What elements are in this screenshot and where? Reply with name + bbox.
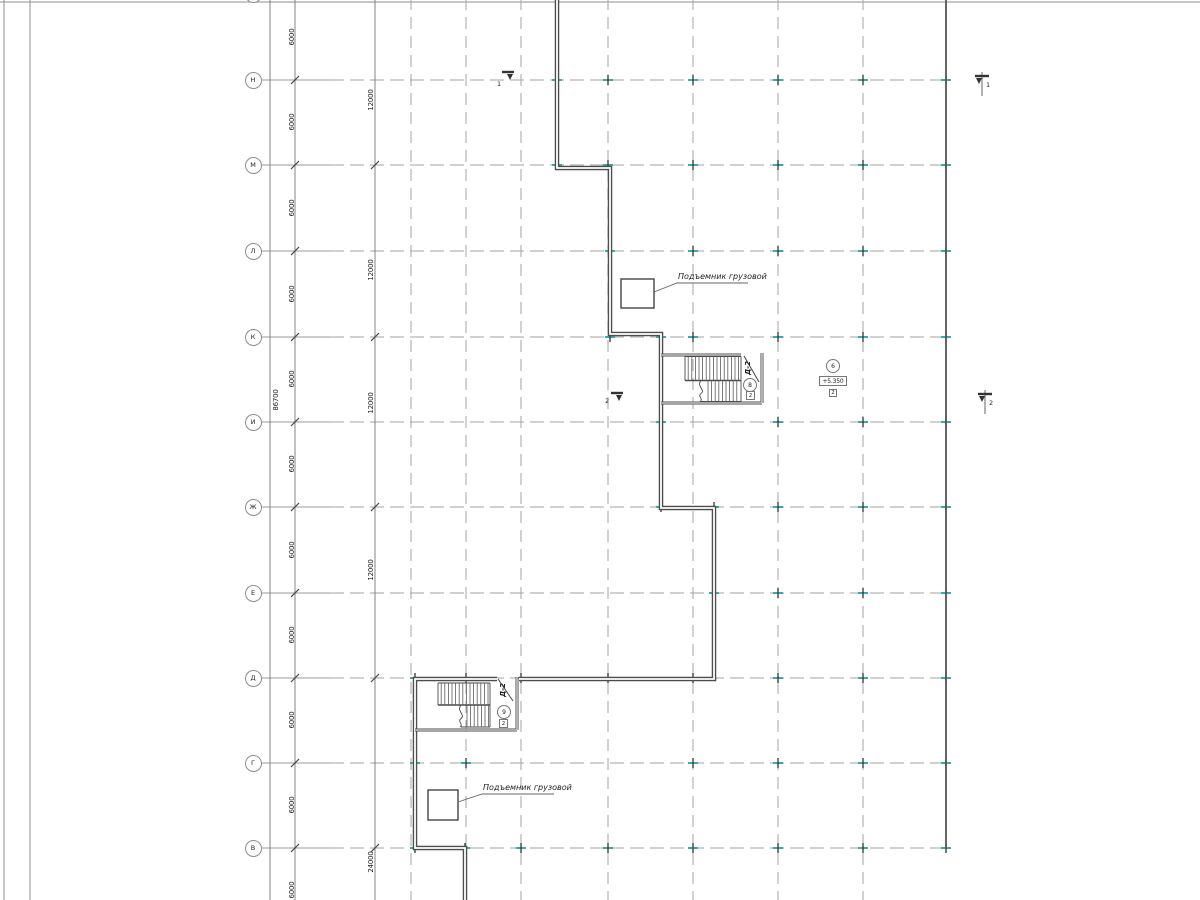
grid-row-label: К [245, 329, 262, 346]
bay-dimension: 6000 [288, 199, 296, 216]
stair-bottom-box: 2 [499, 719, 508, 728]
section-number: 2 [989, 399, 993, 407]
chain-dimension: 12000 [367, 259, 375, 280]
bay-dimension: 6000 [288, 881, 296, 898]
grid-row-label: М [245, 157, 262, 174]
chain-dimension: 12000 [367, 89, 375, 110]
stair-top-box: 2 [746, 391, 755, 400]
bay-dimension: 6000 [288, 28, 296, 45]
grid-row-label: И [245, 414, 262, 431]
bay-dimension: 6000 [288, 626, 296, 643]
chain-dimension: 12000 [367, 559, 375, 580]
bay-dimension: 6000 [288, 541, 296, 558]
lift-annotation-top: Подъемник грузовой [678, 272, 767, 281]
grid-row-label: В [245, 840, 262, 857]
grid-row-label: Н [245, 72, 262, 89]
section-number: 2 [605, 397, 609, 405]
stair-bottom-number-circle: 9 [497, 705, 511, 719]
stair-top-number-circle: 8 [743, 378, 757, 392]
stair-bottom-name: Д-2 [499, 683, 507, 697]
grid-row-label [245, 0, 262, 3]
bay-dimension: 6000 [288, 285, 296, 302]
total-dimension: 86700 [272, 389, 280, 410]
stair-top-name: Д-2 [744, 361, 752, 375]
grid-row-label: Ж [245, 499, 262, 516]
drawing-sheet: 86700 Подъемник грузовой Подъемник грузо… [0, 0, 1200, 900]
bay-dimension: 6000 [288, 711, 296, 728]
grid-row-label: Е [245, 585, 262, 602]
grid-row-label: Г [245, 755, 262, 772]
level-number-circle: 6 [826, 359, 840, 373]
labels-layer: 86700 Подъемник грузовой Подъемник грузо… [0, 0, 1200, 900]
grid-row-label: Д [245, 670, 262, 687]
bay-dimension: 6000 [288, 113, 296, 130]
level-box: 2 [829, 389, 837, 397]
elevation-mark: +5.350 [819, 376, 847, 386]
chain-dimension: 12000 [367, 392, 375, 413]
section-number: 1 [497, 80, 501, 88]
chain-dimension: 24000 [367, 851, 375, 872]
section-number: 1 [986, 81, 990, 89]
grid-row-label: Л [245, 243, 262, 260]
bay-dimension: 6000 [288, 370, 296, 387]
bay-dimension: 6000 [288, 455, 296, 472]
lift-annotation-bottom: Подъемник грузовой [483, 783, 572, 792]
bay-dimension: 6000 [288, 796, 296, 813]
